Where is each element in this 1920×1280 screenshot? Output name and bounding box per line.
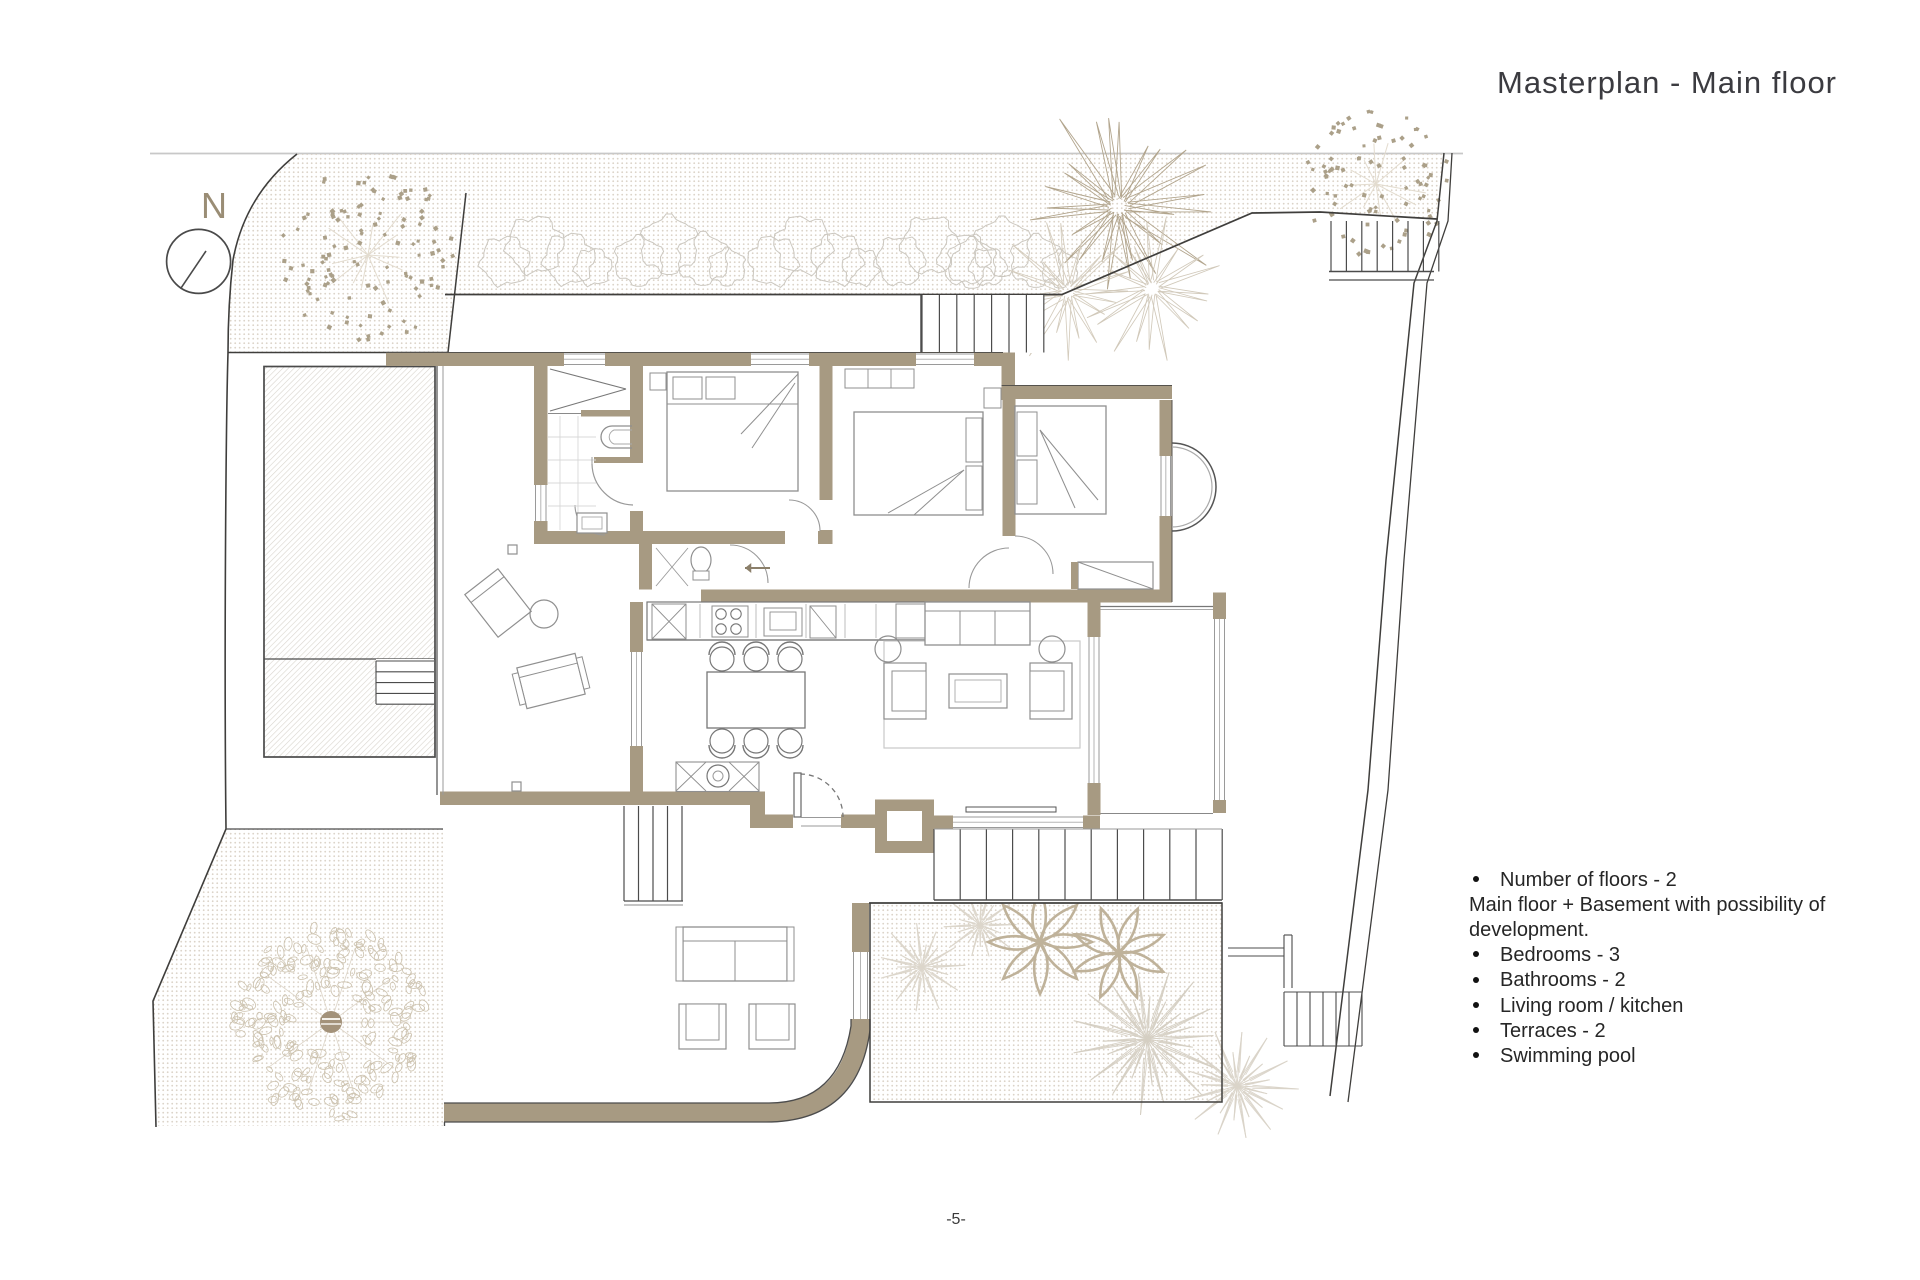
svg-text:N: N bbox=[201, 185, 227, 226]
